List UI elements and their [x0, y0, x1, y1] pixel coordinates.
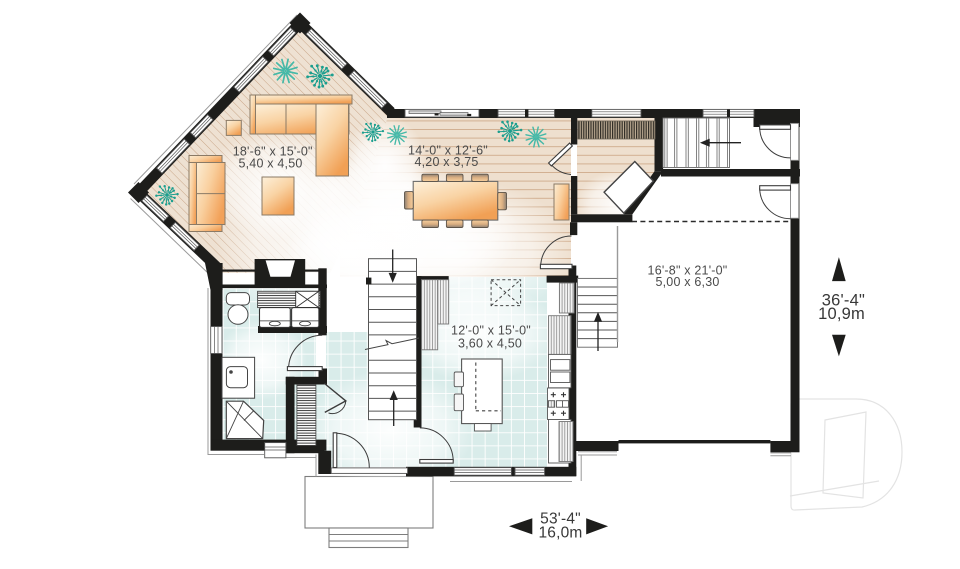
svg-text:4,20 x 3,75: 4,20 x 3,75: [414, 155, 478, 169]
svg-text:5,40 x 4,50: 5,40 x 4,50: [238, 156, 302, 170]
svg-text:5,00 x 6,30: 5,00 x 6,30: [655, 275, 719, 289]
svg-text:16,0m: 16,0m: [538, 525, 582, 542]
svg-text:12'-0" x 15'-0": 12'-0" x 15'-0": [451, 323, 531, 337]
svg-text:3,60 x 4,50: 3,60 x 4,50: [458, 337, 522, 351]
svg-text:10,9m: 10,9m: [818, 305, 865, 323]
